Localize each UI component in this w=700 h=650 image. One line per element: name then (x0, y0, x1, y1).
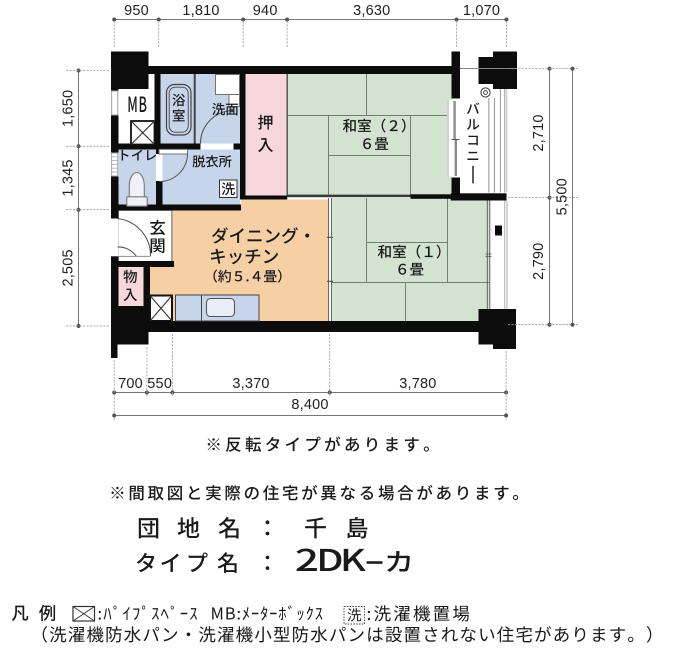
svg-text:5,500: 5,500 (554, 178, 570, 215)
svg-text:1,070: 1,070 (463, 3, 500, 19)
svg-text:700: 700 (118, 376, 143, 392)
svg-text:1,810: 1,810 (182, 3, 219, 19)
svg-text:2,710: 2,710 (531, 114, 547, 151)
svg-text:940: 940 (253, 3, 278, 19)
svg-text:3,630: 3,630 (353, 3, 390, 19)
svg-text:550: 550 (147, 376, 172, 392)
svg-text:950: 950 (124, 3, 149, 19)
svg-text:3,780: 3,780 (399, 376, 436, 392)
svg-text:2,790: 2,790 (531, 243, 547, 280)
svg-text:2,505: 2,505 (60, 249, 76, 286)
svg-text:3,370: 3,370 (232, 376, 269, 392)
svg-text:1,345: 1,345 (60, 159, 76, 196)
svg-text:1,650: 1,650 (60, 90, 76, 127)
svg-text:8,400: 8,400 (291, 397, 328, 413)
